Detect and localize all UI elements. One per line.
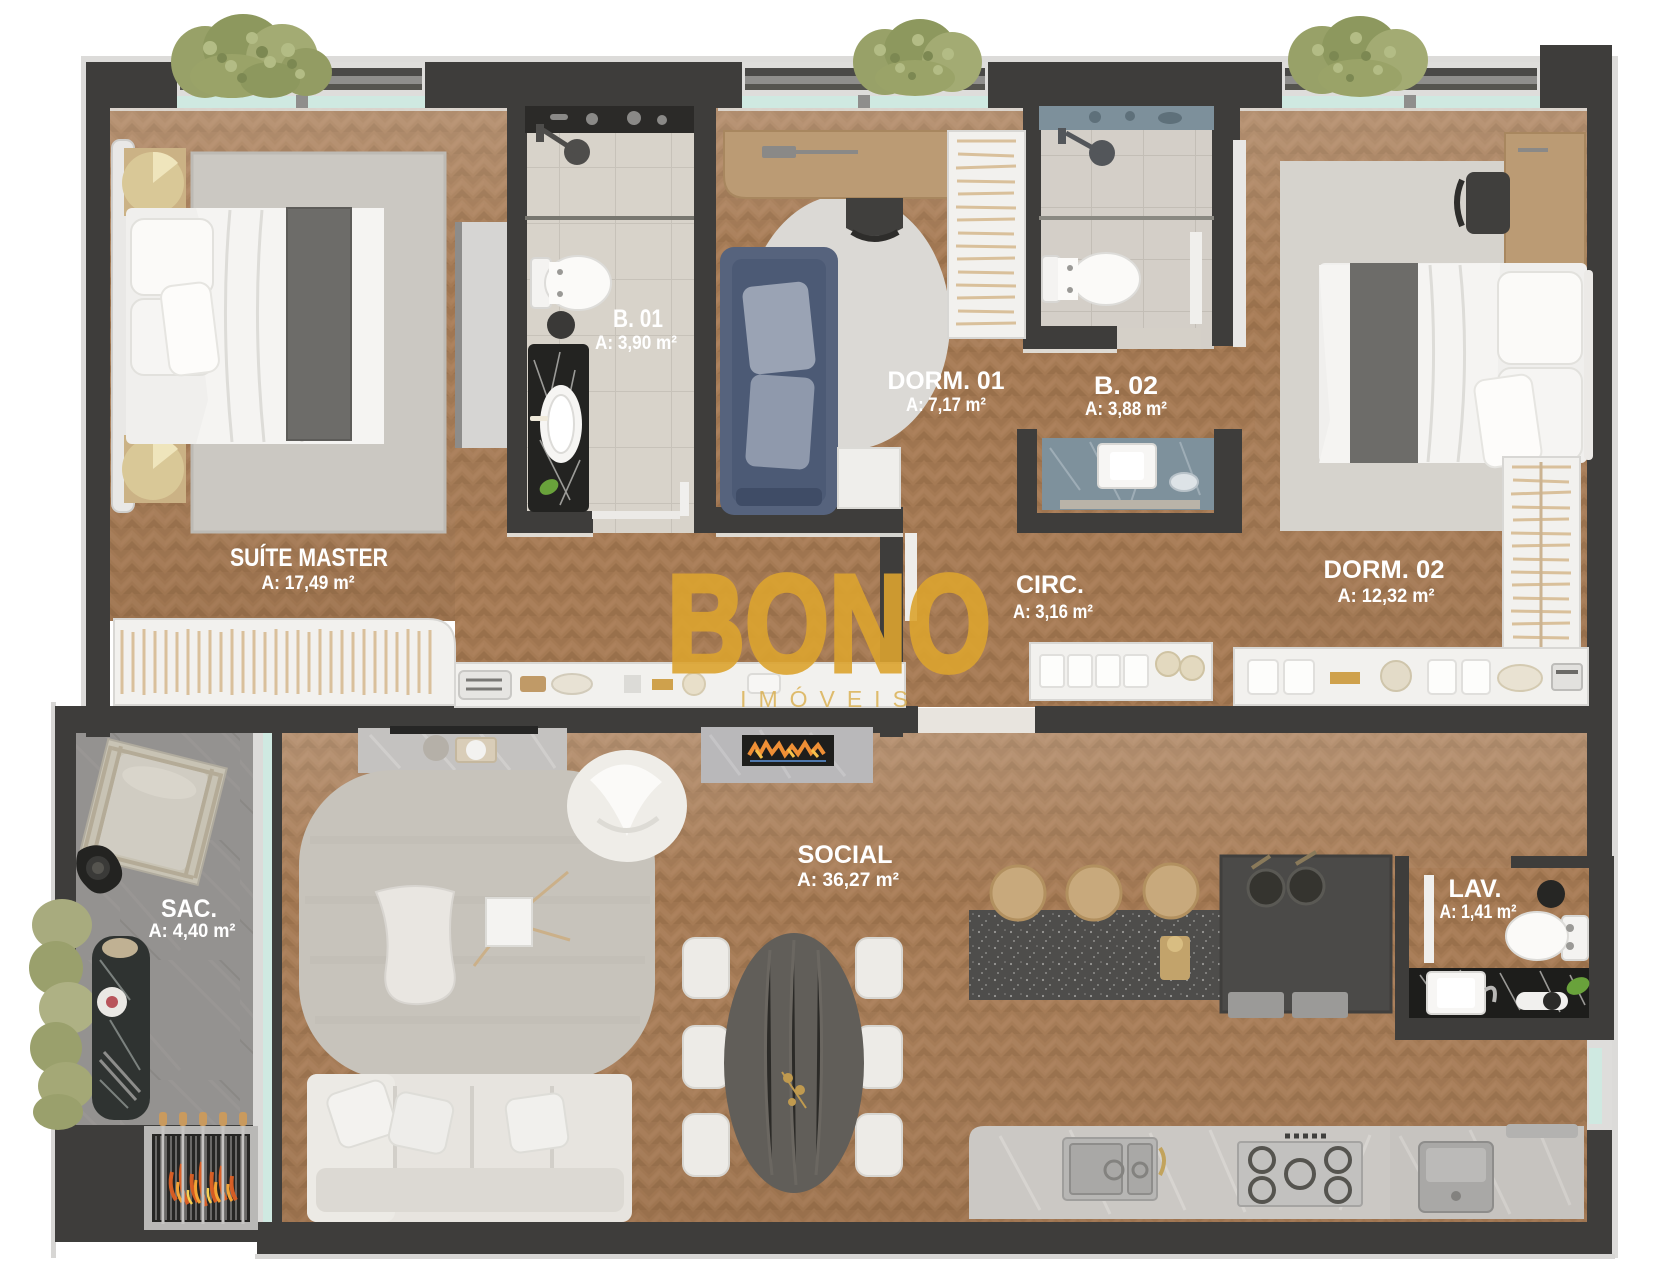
svg-text:IMÓVEIS: IMÓVEIS: [740, 686, 920, 712]
svg-text:BONO: BONO: [667, 547, 991, 701]
svg-text:A: 3,88 m²: A: 3,88 m²: [1085, 399, 1167, 420]
svg-text:B. 01: B. 01: [613, 305, 663, 333]
svg-text:A: 4,40 m²: A: 4,40 m²: [149, 921, 236, 942]
svg-text:SAC.: SAC.: [161, 895, 217, 923]
svg-text:A: 3,16 m²: A: 3,16 m²: [1013, 602, 1093, 623]
svg-text:A: 12,32 m²: A: 12,32 m²: [1338, 586, 1435, 607]
svg-text:DORM. 01: DORM. 01: [888, 367, 1005, 395]
svg-text:SOCIAL: SOCIAL: [798, 841, 893, 869]
svg-text:A: 36,27 m²: A: 36,27 m²: [797, 870, 899, 891]
svg-text:A: 3,90 m²: A: 3,90 m²: [595, 333, 677, 354]
svg-text:A: 7,17 m²: A: 7,17 m²: [906, 395, 986, 416]
svg-text:A: 1,41 m²: A: 1,41 m²: [1440, 902, 1517, 923]
svg-text:A: 17,49 m²: A: 17,49 m²: [262, 573, 355, 594]
svg-text:LAV.: LAV.: [1449, 875, 1502, 903]
svg-text:SUÍTE MASTER: SUÍTE MASTER: [230, 543, 388, 572]
svg-text:CIRC.: CIRC.: [1016, 571, 1084, 599]
svg-text:DORM. 02: DORM. 02: [1324, 556, 1445, 584]
svg-text:B. 02: B. 02: [1094, 372, 1158, 400]
